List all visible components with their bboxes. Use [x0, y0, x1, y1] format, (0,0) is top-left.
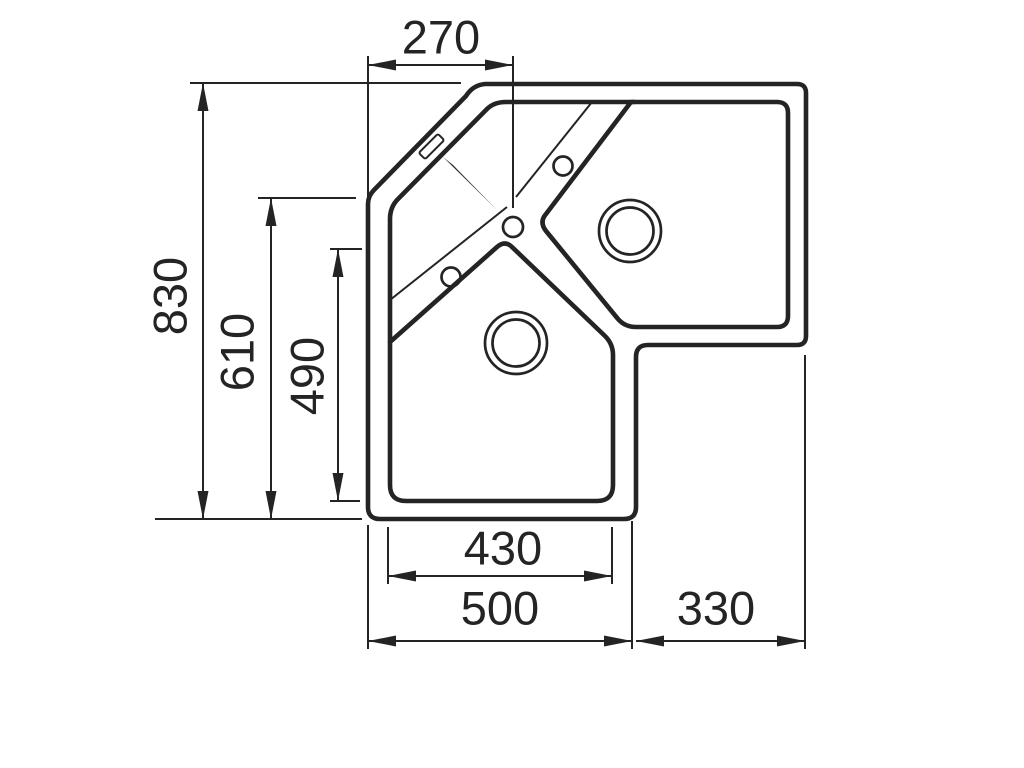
- label-500: 500: [461, 581, 539, 634]
- groove-line-upper: [516, 102, 592, 197]
- label-830: 830: [143, 257, 196, 335]
- arrow-500-left: [368, 636, 396, 647]
- arrow-490-bottom: [333, 473, 344, 501]
- right-bowl-outline: [543, 102, 789, 327]
- sink-technical-drawing: 270 830 610 490 430 500 330: [0, 0, 1024, 768]
- faucet-hole: [503, 217, 523, 237]
- arrow-830-bottom: [198, 491, 209, 519]
- right-bowl-drain-outer: [599, 200, 661, 262]
- label-490: 490: [280, 337, 333, 415]
- label-610: 610: [210, 313, 263, 391]
- label-330: 330: [677, 581, 755, 634]
- arrow-330-right: [777, 636, 805, 647]
- label-270: 270: [402, 10, 480, 63]
- faucet-lever-mark: [443, 157, 497, 210]
- accessory-hole-right: [554, 157, 573, 176]
- arrow-490-top: [333, 249, 344, 277]
- arrow-610-bottom: [266, 491, 277, 519]
- sink-details: [390, 102, 661, 374]
- arrow-610-top: [266, 198, 277, 226]
- lower-bowl-outline: [390, 244, 613, 502]
- arrow-830-top: [198, 83, 209, 111]
- arrow-270-right: [485, 60, 513, 71]
- lower-bowl-drain-inner: [493, 320, 540, 367]
- arrow-430-right: [584, 571, 612, 582]
- accessory-hole-left: [442, 268, 461, 287]
- right-bowl-drain-inner: [607, 208, 654, 255]
- arrow-430-left: [388, 571, 416, 582]
- lower-bowl-drain-outer: [485, 312, 547, 374]
- arrow-330-left: [636, 636, 664, 647]
- arrow-500-right: [604, 636, 632, 647]
- drawing-canvas: 270 830 610 490 430 500 330: [0, 0, 1024, 768]
- label-430: 430: [464, 521, 542, 574]
- arrow-270-left: [368, 60, 396, 71]
